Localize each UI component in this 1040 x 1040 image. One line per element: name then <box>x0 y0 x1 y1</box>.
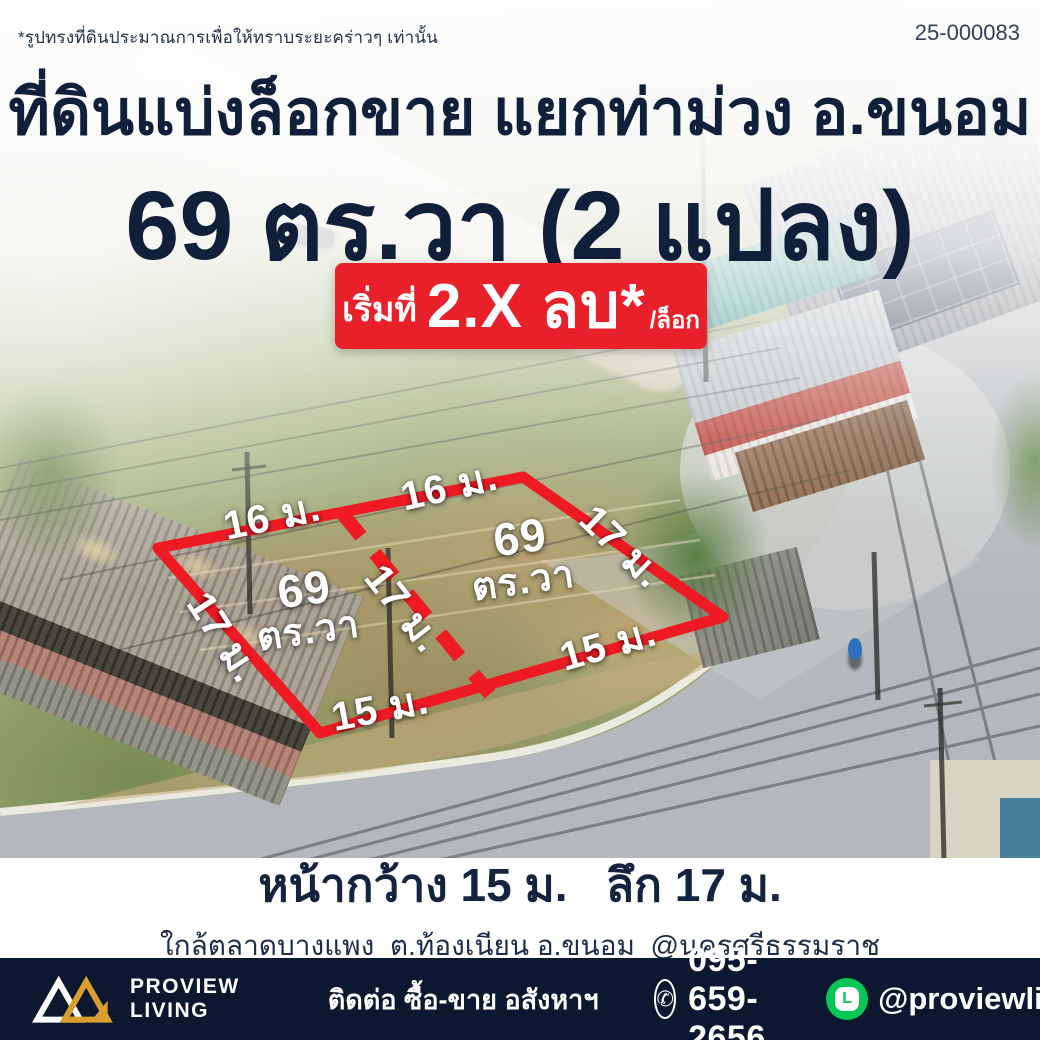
price-badge: เริ่มที่ 2.X ลบ* /ล็อก <box>335 263 707 349</box>
info-band: หน้ากว้าง 15 ม. ลึก 17 ม. ใกล้ตลาดบางแพง… <box>0 858 1040 958</box>
brand-name-line2: LIVING <box>130 999 240 1023</box>
brand-name: PROVIEW LIVING <box>130 975 240 1023</box>
phone-number: 095-659-2656 <box>688 941 784 1040</box>
dimensions-text: หน้ากว้าง 15 ม. ลึก 17 ม. <box>258 849 782 922</box>
brand-logo-group: PROVIEW LIVING <box>32 971 240 1027</box>
line-contact: L @proviewliving <box>826 978 1040 1020</box>
listing-ref-number: 25-000083 <box>915 20 1020 46</box>
price-value: 2.X ลบ* <box>427 257 646 355</box>
contact-label: ติดต่อ ซื้อ-ขาย อสังหาฯ <box>328 978 599 1021</box>
plot-boundary <box>158 477 723 733</box>
price-prefix: เริ่มที่ <box>342 282 417 336</box>
headline-title: ที่ดินแบ่งล็อกขาย แยกท่าม่วง อ.ขนอม <box>0 62 1040 162</box>
brand-name-line1: PROVIEW <box>130 975 240 999</box>
price-unit: /ล็อก <box>650 300 700 339</box>
footer-bar: PROVIEW LIVING ติดต่อ ซื้อ-ขาย อสังหาฯ ✆… <box>0 958 1040 1040</box>
land-sale-poster: 16 ม.16 ม.17 ม.17 ม.17 ม.15 ม.15 ม.69ตร.… <box>0 0 1040 1040</box>
phone-icon: ✆ <box>654 979 676 1019</box>
phone-contact: ✆ 095-659-2656 <box>654 941 784 1040</box>
line-app-icon: L <box>826 978 868 1020</box>
disclaimer-text: *รูปทรงที่ดินประมาณการเพื่อให้ทราบระยะคร… <box>18 24 438 51</box>
proview-logo-icon <box>32 971 118 1027</box>
line-app-icon-glyph: L <box>835 987 859 1011</box>
line-id: @proviewliving <box>878 981 1040 1017</box>
